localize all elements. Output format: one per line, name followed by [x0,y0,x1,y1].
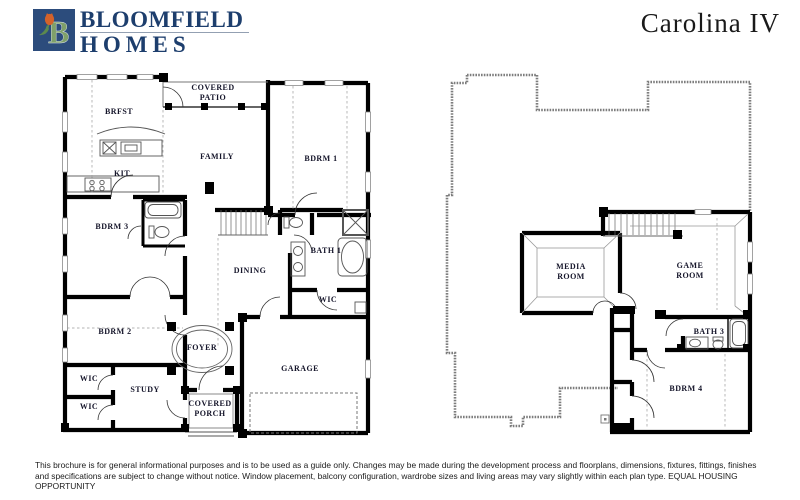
logo-wordmark: BLOOMFIELD HOMES [80,8,249,57]
room-label-dining: DINING [234,266,266,276]
disclaimer-text: This brochure is for general information… [35,460,772,492]
room-label-bdrm-2: BDRM 2 [98,327,131,337]
room-label-wic-2: WIC [80,374,98,384]
stairs [603,213,683,236]
room-label-wic: WIC [319,295,337,305]
logo-line-bloomfield: BLOOMFIELD [80,8,249,33]
room-label-bdrm-4: BDRM 4 [669,384,702,394]
plan-title: Carolina IV [641,8,780,39]
logo-line-homes: HOMES [80,33,249,57]
windows [695,210,752,294]
door-swings [593,293,683,418]
walls [522,212,750,432]
stairs [218,210,268,235]
second-floor-drawing [425,60,770,445]
room-label-foyer: FOYER [187,343,217,353]
interior-walls [143,200,185,246]
roof-outline [447,75,750,426]
garage-door-outline [250,393,357,433]
brochure-page: B BLOOMFIELD HOMES Carolina IV [0,0,800,500]
room-label-garage: GARAGE [281,364,319,374]
room-label-family: FAMILY [200,152,234,162]
ceiling-lines [67,80,347,346]
first-floor-plan: COVERED PATIO BRFST FAMILY BDRM 1 KIT BD… [55,60,395,460]
ceiling-lines [647,218,725,428]
room-label-kit: KIT [114,169,130,179]
room-label-bdrm-1: BDRM 1 [304,154,337,164]
second-floor-plan: MEDIA ROOM GAME ROOM BATH 3 BDRM 4 [425,60,770,445]
room-label-covered-porch: COVERED PORCH [188,399,231,419]
tulip-b-logo-icon: B [32,8,76,52]
fixtures [67,127,368,436]
room-label-wic-3: WIC [80,402,98,412]
room-label-bath-3: BATH 3 [694,327,725,337]
room-label-game-room: GAME ROOM [676,261,704,281]
header: B BLOOMFIELD HOMES Carolina IV [0,0,800,58]
room-label-bath-1: BATH 1 [311,246,342,256]
room-label-media-room: MEDIA ROOM [556,262,586,282]
room-label-covered-patio: COVERED PATIO [191,83,234,103]
room-label-bdrm-3: BDRM 3 [95,222,128,232]
bloomfield-logo: B BLOOMFIELD HOMES [32,8,249,57]
fixtures [601,318,748,423]
room-label-study: STUDY [130,385,159,395]
room-label-brfst: BRFST [105,107,133,117]
